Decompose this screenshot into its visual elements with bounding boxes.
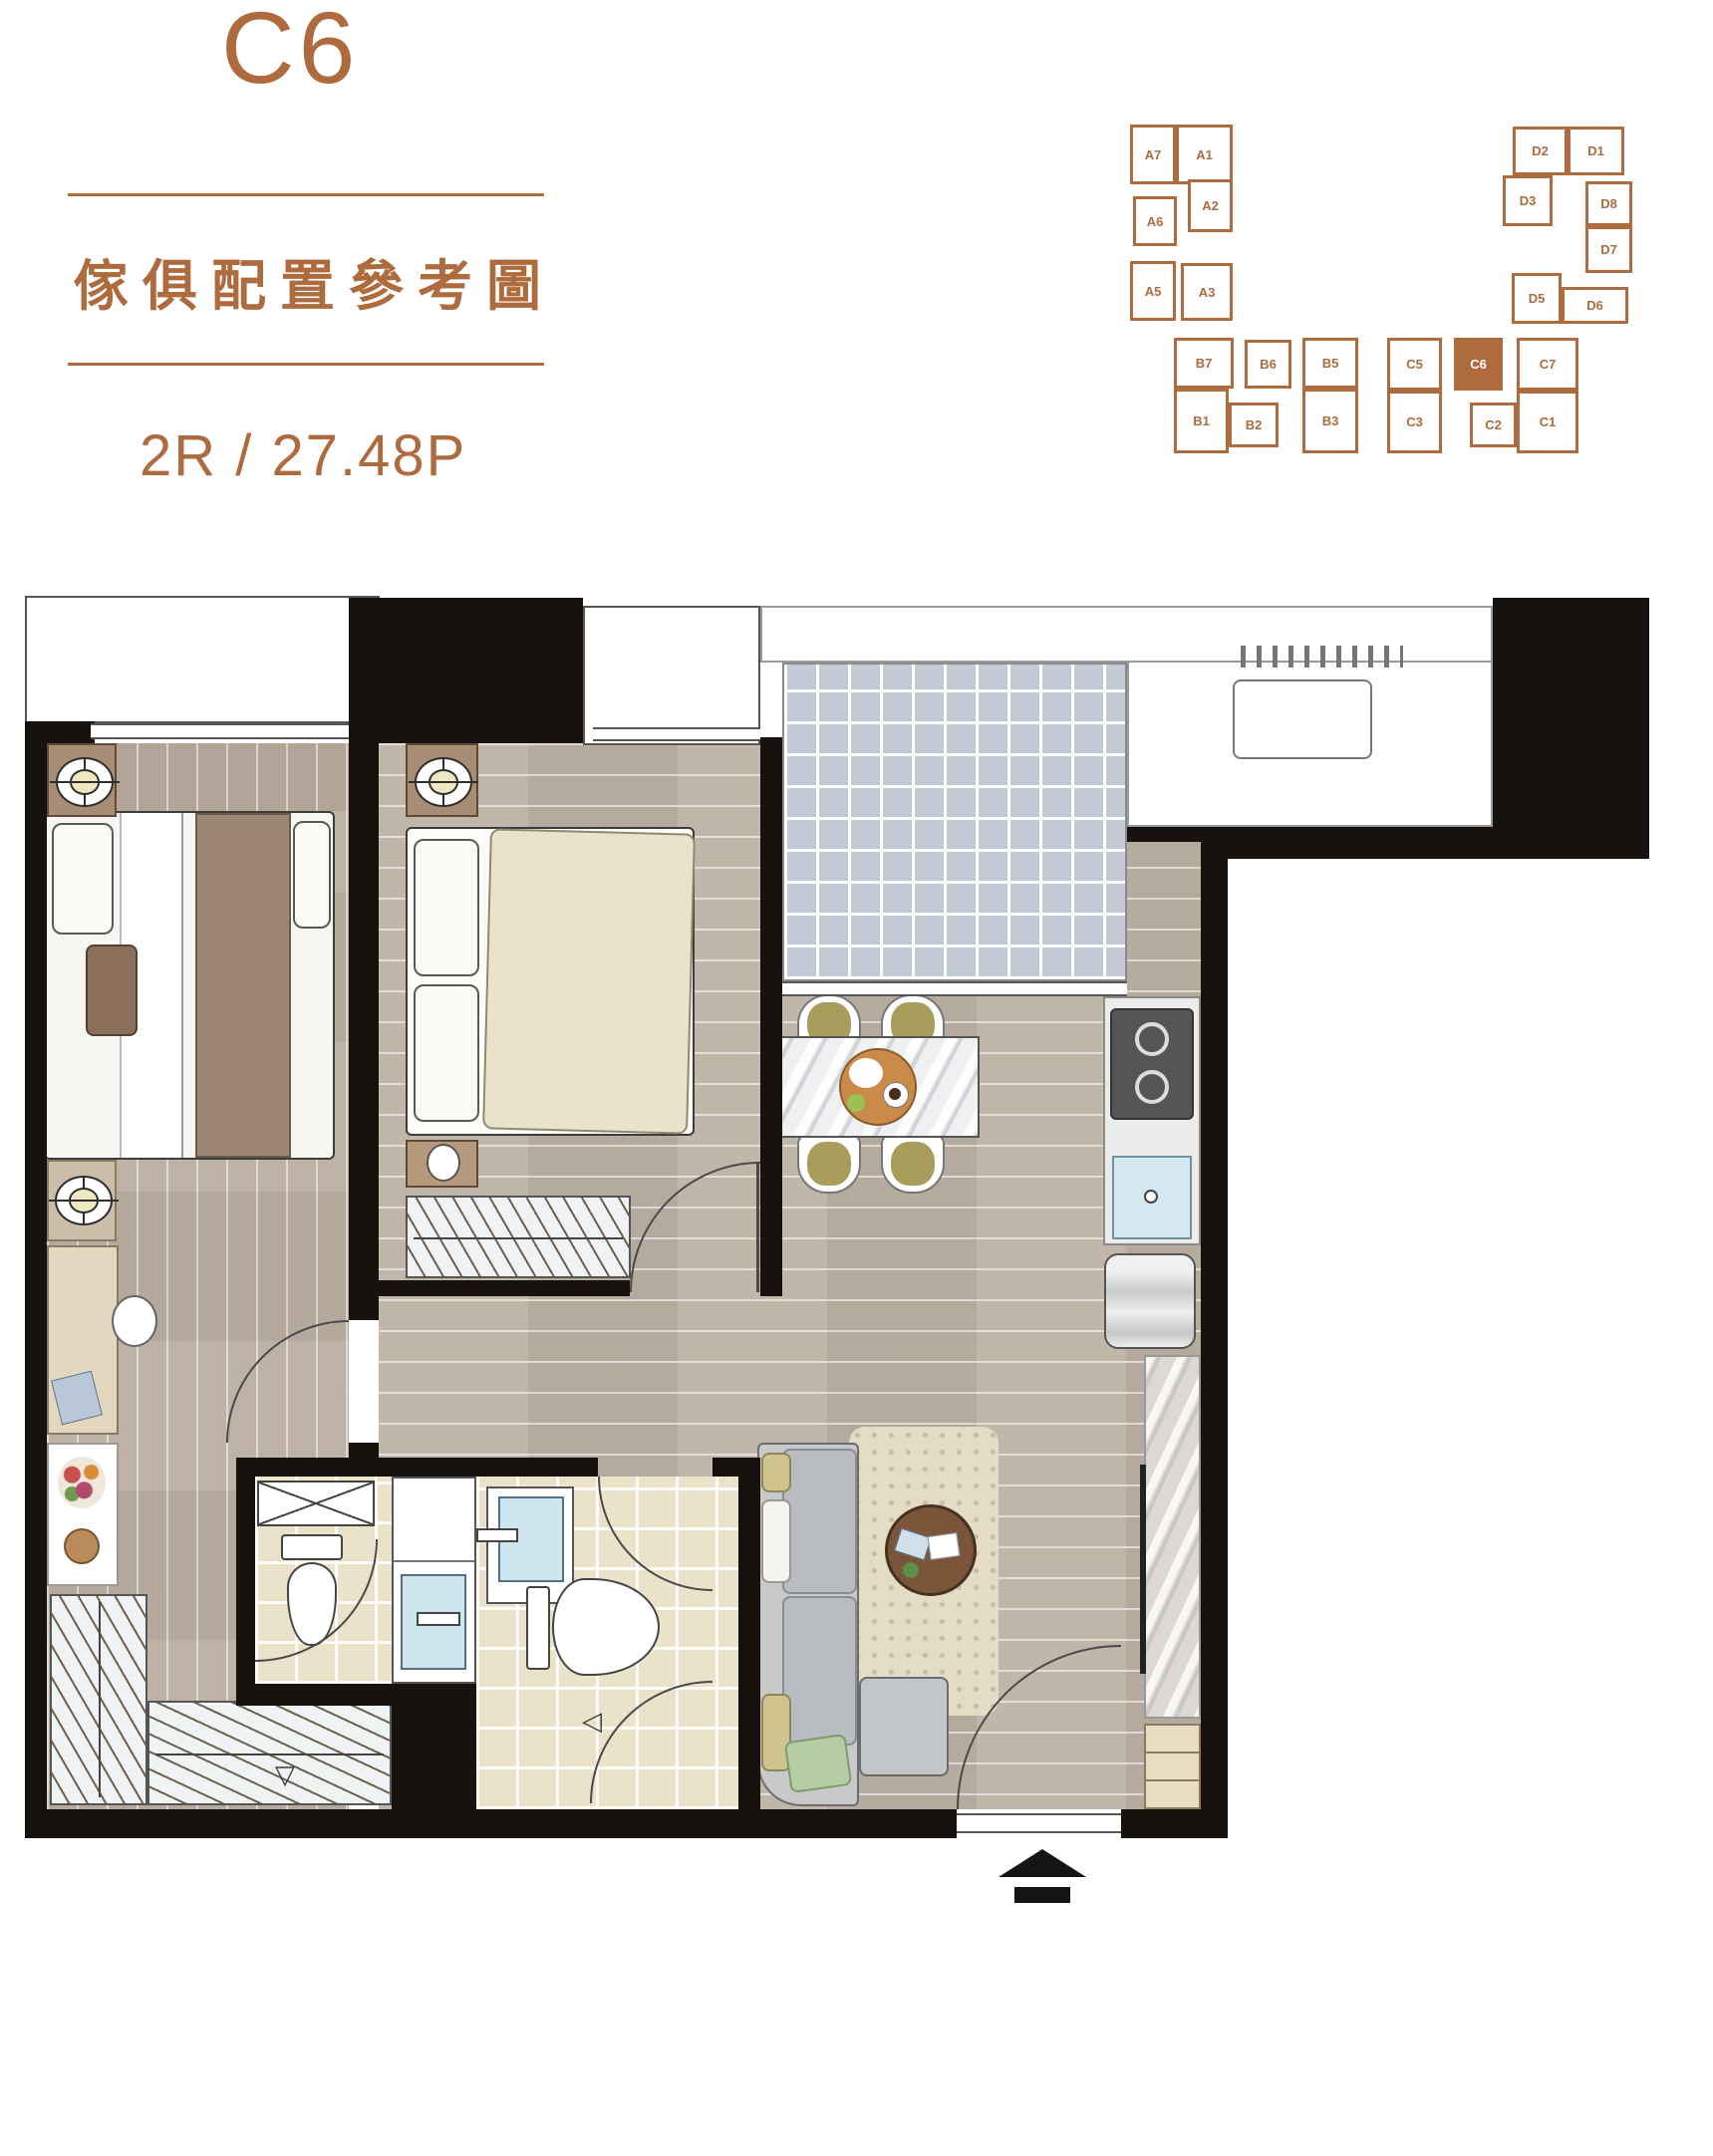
- unit-spec: 2R / 27.48P: [140, 422, 466, 489]
- door-leaf: [756, 1162, 759, 1292]
- ac-condenser-unit: [1233, 679, 1372, 759]
- keyplan-unit-d6: D6: [1562, 287, 1628, 324]
- toilet2-tank: [526, 1586, 550, 1670]
- wall-segment: [1201, 827, 1649, 859]
- keyplan-unit-b7: B7: [1174, 338, 1234, 389]
- page-subtitle: 傢俱配置參考圖: [74, 241, 555, 321]
- wall-segment: [1121, 1809, 1228, 1838]
- wall-segment: [25, 721, 95, 743]
- keyplan-unit-c2: C2: [1470, 403, 1517, 447]
- chair-pad: [891, 1142, 935, 1186]
- keyplan-unit-c3: C3: [1387, 391, 1442, 453]
- keyplan-unit-d1: D1: [1568, 127, 1624, 175]
- keyplan-unit-b1: B1: [1174, 389, 1229, 453]
- wall-segment: [25, 721, 47, 1838]
- fan-coil-icon: [415, 757, 472, 807]
- keyplan-unit-c1: C1: [1517, 391, 1578, 453]
- plant-icon: [903, 1562, 919, 1578]
- balcony-front: [25, 596, 380, 723]
- bed1-accent-pillow: [86, 944, 138, 1036]
- header-divider-top: [68, 193, 544, 196]
- wall-segment: [379, 1280, 630, 1296]
- wall-segment: [1127, 827, 1201, 842]
- bed1-pillow: [293, 821, 331, 929]
- bedroom2-bay-window: [583, 606, 760, 745]
- vanity2-faucet: [476, 1528, 518, 1542]
- wall-segment: [236, 1477, 255, 1699]
- balcony-tiled: [782, 663, 1127, 981]
- plate-icon: [849, 1058, 883, 1088]
- keyplan-unit-a2: A2: [1188, 179, 1233, 232]
- wall-segment: [236, 1458, 598, 1477]
- entrance-arrow-base: [1014, 1887, 1070, 1903]
- table-lamp-icon: [427, 1144, 460, 1182]
- sofa-ottoman: [859, 1677, 949, 1776]
- fan-coil-icon: [56, 757, 114, 807]
- walkin-closet-vertical: [50, 1594, 147, 1805]
- refrigerator: [1104, 1253, 1196, 1349]
- desk-stool: [112, 1295, 157, 1347]
- bed2-pillow: [414, 839, 479, 976]
- wall-mounted-tv: [1140, 1465, 1146, 1674]
- keyplan-unit-d3: D3: [1503, 175, 1553, 226]
- wall-segment: [349, 1280, 379, 1320]
- wall-segment: [25, 1809, 957, 1838]
- vanity-divider: [394, 1560, 474, 1562]
- louver-vent-icon: [1241, 646, 1403, 668]
- wall-segment: [392, 1706, 476, 1809]
- entrance-threshold: [957, 1813, 1121, 1833]
- keyplan-unit-d7: D7: [1585, 226, 1632, 273]
- walkin-closet-leg: [147, 1701, 392, 1805]
- wardrobe-rail: [414, 1237, 623, 1239]
- washer-position-box: [257, 1481, 375, 1526]
- sofa-pillow-green: [784, 1734, 853, 1793]
- burner-icon: [1135, 1022, 1169, 1056]
- chair-pad: [807, 1142, 851, 1186]
- wall-segment: [236, 1684, 476, 1706]
- bed2-duvet: [482, 828, 696, 1134]
- keyplan-unit-b2: B2: [1229, 403, 1279, 447]
- shower-marker-icon: ◁: [582, 1708, 602, 1734]
- fan-coil-icon: [55, 1176, 113, 1225]
- bed2-pillow: [414, 984, 479, 1122]
- keyplan-unit-c6-highlighted: C6: [1454, 338, 1503, 391]
- keyplan-unit-b6: B6: [1245, 340, 1291, 389]
- floor-drain-icon: ▽: [275, 1761, 295, 1787]
- keyplan-unit-a5: A5: [1130, 261, 1176, 321]
- wall-segment: [349, 1443, 379, 1458]
- wall-segment: [1201, 827, 1228, 1838]
- coffee-icon: [889, 1088, 901, 1100]
- wall-segment: [349, 743, 379, 1280]
- entrance-arrow-icon: [999, 1849, 1086, 1877]
- wall-segment: [349, 598, 583, 743]
- keyplan-unit-d5: D5: [1512, 273, 1562, 324]
- balcony-sliding-door: [782, 981, 1127, 996]
- flower-bouquet-icon: [58, 1457, 106, 1508]
- sink-drain-icon: [1144, 1190, 1158, 1204]
- keyplan-unit-d2: D2: [1513, 127, 1568, 175]
- wall-segment: [738, 1458, 760, 1809]
- closet-rail: [155, 1753, 384, 1755]
- unit-title: C6: [221, 0, 359, 107]
- burner-icon: [1135, 1070, 1169, 1104]
- keyplan-unit-a3: A3: [1181, 263, 1233, 321]
- sofa-pillow-white: [761, 1499, 791, 1583]
- keyplan-unit-a7: A7: [1130, 125, 1176, 184]
- keyplan-unit-a6: A6: [1133, 196, 1177, 246]
- shoe-cabinet: [1144, 1724, 1201, 1809]
- keyplan-unit-b3: B3: [1302, 389, 1358, 453]
- sofa-seat-cushion: [782, 1449, 857, 1594]
- bed1-pillow: [52, 823, 114, 935]
- window-bedroom1: [91, 723, 349, 739]
- window-bedroom2: [593, 727, 760, 741]
- wall-segment: [760, 737, 782, 1296]
- vanity1-faucet: [417, 1612, 460, 1626]
- keyplan-unit-d8: D8: [1585, 181, 1632, 226]
- kiwi-icon: [847, 1094, 865, 1112]
- wardrobe: [406, 1196, 631, 1278]
- keyplan-unit-c7: C7: [1517, 338, 1578, 391]
- bed1-throw-blanket: [195, 813, 291, 1158]
- keyplan-unit-b5: B5: [1302, 338, 1358, 389]
- sofa-seat-cushion: [782, 1596, 857, 1746]
- keyplan-unit-a1: A1: [1176, 125, 1233, 184]
- tv-feature-wall: [1144, 1355, 1201, 1719]
- sofa-pillow-olive: [761, 1453, 791, 1492]
- wall-segment: [1493, 598, 1649, 832]
- keyplan-unit-c5: C5: [1387, 338, 1442, 391]
- book-icon: [927, 1532, 960, 1560]
- closet-rail: [99, 1602, 101, 1797]
- decor-plate-icon: [64, 1528, 100, 1564]
- header-divider-bottom: [68, 363, 544, 366]
